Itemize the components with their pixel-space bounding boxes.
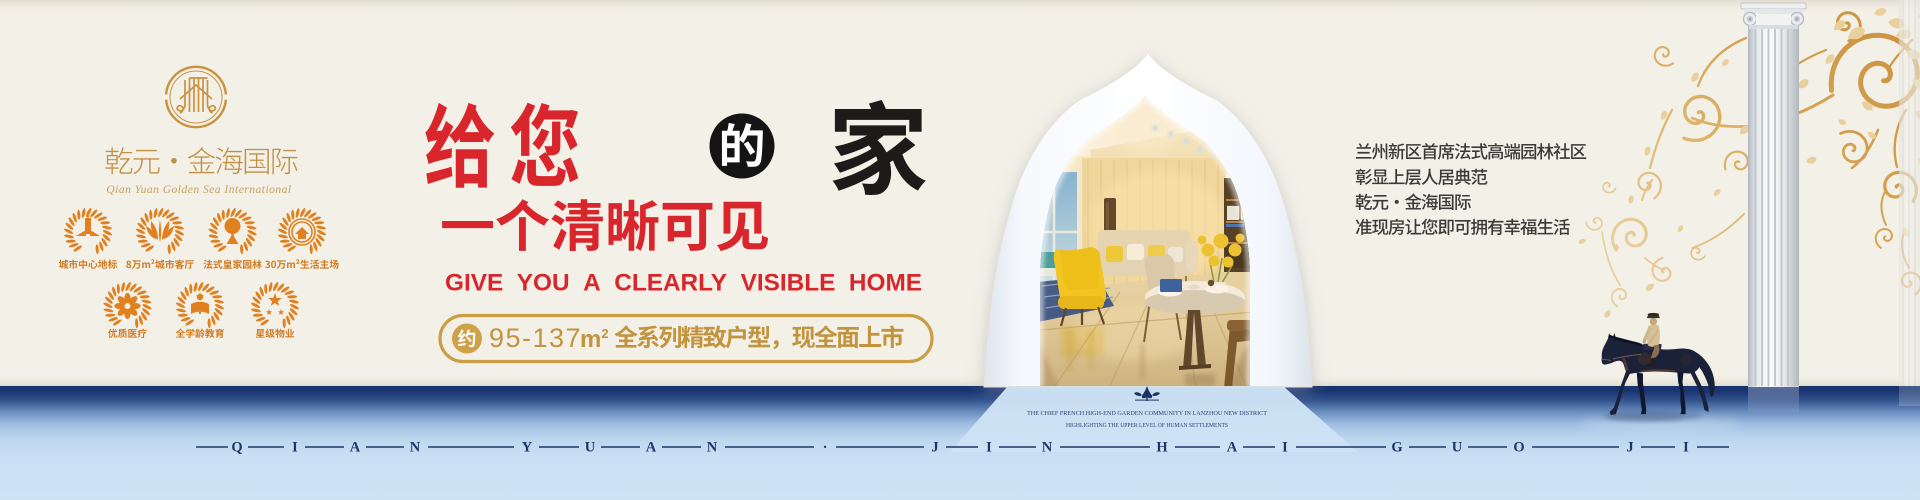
svg-text:J: J [931,440,938,456]
svg-text:Qian Yuan Golden Sea Internati: Qian Yuan Golden Sea International [106,184,291,196]
svg-text:U: U [1452,440,1463,456]
svg-text:HIGHLIGHTING THE UPPER LEVEL O: HIGHLIGHTING THE UPPER LEVEL OF HUMAN SE… [1066,422,1228,429]
svg-text:N: N [410,440,421,456]
svg-text:O: O [1513,440,1524,456]
svg-text:A: A [1227,440,1238,456]
svg-text:A: A [350,440,361,456]
svg-text:Q: Q [231,440,242,456]
svg-text:N: N [1042,440,1053,456]
svg-text:·: · [823,440,828,456]
svg-text:GIVE YOU A CLEARLY VISIBLE: GIVE YOU A CLEARLY VISIBLE HOME [445,270,922,297]
svg-text:G: G [1391,440,1402,456]
svg-text:U: U [585,440,596,456]
svg-text:I: I [986,440,992,456]
svg-text:H: H [1156,440,1168,456]
svg-text:A: A [646,440,657,456]
svg-text:J: J [1626,440,1633,456]
svg-text:I: I [1282,440,1288,456]
svg-text:N: N [707,440,718,456]
svg-text:95-137: 95-137 [489,323,582,353]
svg-text:THE CHIEF FRENCH HIGH-END GARD: THE CHIEF FRENCH HIGH-END GARDEN COMMUNI… [1027,410,1267,417]
svg-text:I: I [1683,440,1689,456]
svg-text:Y: Y [522,440,533,456]
svg-text:I: I [292,440,298,456]
